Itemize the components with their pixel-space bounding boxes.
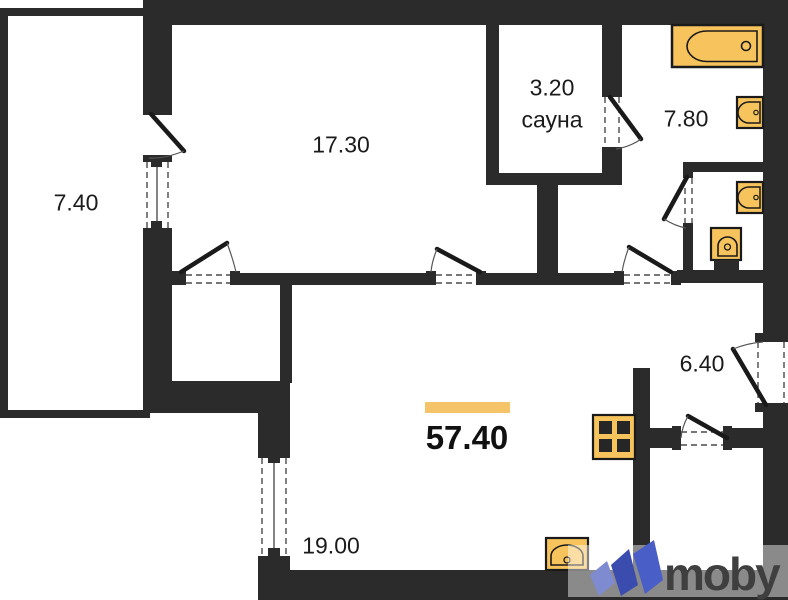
balcony-wall-top [0, 8, 150, 16]
wall-balcony-divider-top [143, 0, 172, 110]
bathtub-icon [672, 25, 763, 67]
sauna-wall-left [486, 25, 499, 175]
door-b-post-left [426, 271, 436, 285]
wall-balcony-divider-bottom [143, 238, 172, 383]
toilet-icon [711, 228, 741, 272]
walls [0, 0, 788, 600]
room-label-bathroom: 7.80 [664, 106, 709, 133]
entrance-door-post-top [755, 333, 788, 342]
hall-wall-left [650, 428, 674, 448]
bathroom-sink-icon [737, 97, 763, 128]
stove-icon [593, 415, 635, 459]
wall-top [143, 0, 788, 25]
door-c-post-left [614, 271, 624, 285]
balcony-window-nub-top [151, 160, 162, 167]
wc-door-leaf [664, 177, 687, 219]
closet-wall-right [280, 283, 292, 383]
balcony-unit-frame-top [143, 108, 172, 115]
door-c-leaf [629, 247, 671, 272]
balcony-window-nub-bottom [151, 221, 162, 228]
hall-wall-right [730, 428, 763, 448]
wall-window-left-lower [258, 556, 290, 572]
entrance-door-leaf [733, 349, 766, 405]
door-b-swing [431, 249, 437, 272]
window-main-nub-bottom [268, 548, 280, 556]
hall-door-leaf [688, 416, 727, 438]
window-main-nub-top [268, 455, 280, 463]
wall-window-left-upper [258, 413, 290, 458]
wall-band-left [143, 381, 290, 413]
wc-sink-icon [737, 182, 763, 213]
door-c-swing [622, 247, 629, 272]
room-label-sauna-name: сауна [521, 107, 582, 134]
floor-plan-drawing [0, 0, 788, 600]
door-a-post-left [172, 271, 186, 285]
sauna-wall-right-upper [602, 25, 622, 88]
entrance-door-post-bottom [755, 403, 788, 412]
door-b-leaf [437, 249, 480, 272]
vestibule-wall [537, 183, 558, 275]
moby-logo-text: moby [664, 551, 779, 597]
door-a-leaf [181, 243, 227, 272]
room-label-balcony: 7.40 [54, 190, 99, 217]
wc-door-swing [664, 219, 686, 228]
balcony-unit-sill [143, 228, 172, 238]
sauna-door-post-top [602, 88, 622, 97]
wc-wall-top [683, 162, 788, 172]
kitchen-wall-vertical [633, 368, 650, 570]
balcony-wall-left [0, 8, 8, 418]
hall-door-swing [681, 416, 688, 438]
room-label-living-room: 17.30 [312, 132, 370, 159]
floor-plan: 7.40 17.30 3.20 сауна 7.80 6.40 19.00 57… [0, 0, 788, 600]
wall-interior-a [236, 273, 428, 285]
balcony-door-leaf [151, 114, 184, 151]
room-label-sauna-area: 3.20 [530, 75, 575, 102]
balcony-wall-bottom [0, 410, 150, 418]
total-area-label: 57.40 [426, 419, 509, 457]
door-a-swing [227, 243, 236, 272]
hall-door-post-left [672, 426, 681, 450]
room-label-hallway: 6.40 [680, 351, 725, 378]
room-label-kitchen-living: 19.00 [302, 533, 360, 560]
wc-wall-left [683, 223, 693, 270]
sauna-door-leaf [610, 97, 641, 139]
total-area-accent-bar [425, 402, 510, 413]
